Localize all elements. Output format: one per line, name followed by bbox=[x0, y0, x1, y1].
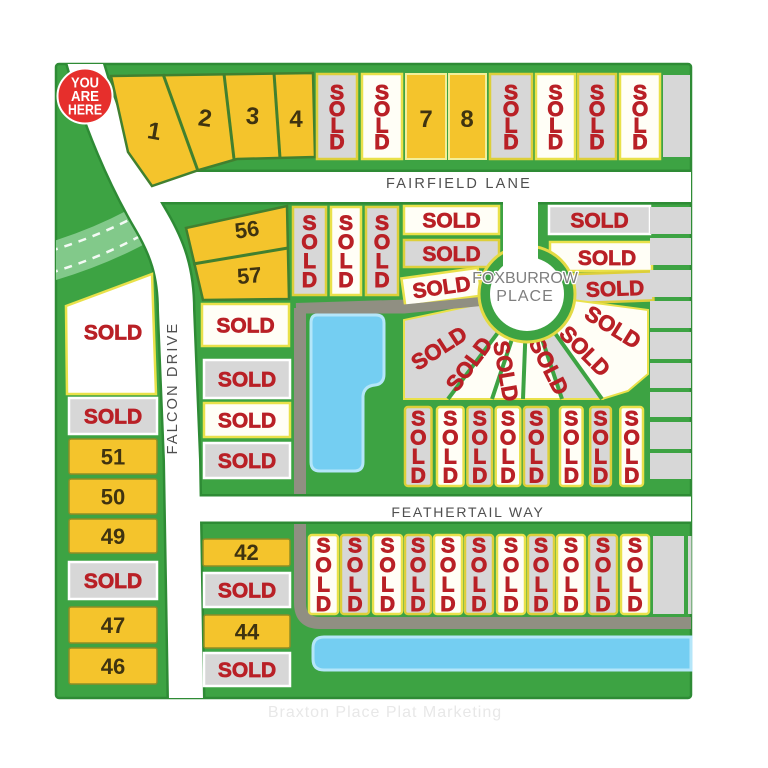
svg-text:8: 8 bbox=[460, 106, 473, 133]
svg-text:D: D bbox=[374, 131, 389, 154]
svg-text:47: 47 bbox=[101, 613, 125, 638]
svg-text:D: D bbox=[302, 269, 317, 292]
svg-text:SOLD: SOLD bbox=[578, 247, 636, 270]
svg-text:PLACE: PLACE bbox=[496, 288, 553, 305]
svg-text:SOLD: SOLD bbox=[218, 368, 276, 391]
svg-text:SOLD: SOLD bbox=[585, 277, 644, 302]
svg-text:44: 44 bbox=[235, 620, 260, 645]
svg-text:SOLD: SOLD bbox=[218, 659, 276, 682]
svg-text:56: 56 bbox=[233, 215, 261, 243]
svg-text:D: D bbox=[503, 593, 518, 616]
svg-text:57: 57 bbox=[236, 262, 263, 289]
svg-text:D: D bbox=[563, 593, 578, 616]
svg-text:D: D bbox=[564, 464, 579, 487]
svg-text:SOLD: SOLD bbox=[218, 450, 276, 473]
svg-text:FEATHERTAIL WAY: FEATHERTAIL WAY bbox=[391, 504, 544, 520]
svg-text:D: D bbox=[329, 131, 344, 154]
svg-text:SOLD: SOLD bbox=[216, 314, 274, 337]
svg-text:D: D bbox=[500, 464, 515, 487]
svg-text:51: 51 bbox=[101, 445, 125, 470]
svg-text:42: 42 bbox=[234, 540, 258, 565]
svg-text:D: D bbox=[503, 131, 518, 154]
svg-text:FALCON DRIVE: FALCON DRIVE bbox=[165, 322, 181, 455]
svg-text:D: D bbox=[440, 593, 455, 616]
svg-text:FAIRFIELD LANE: FAIRFIELD LANE bbox=[386, 176, 532, 192]
svg-text:46: 46 bbox=[101, 654, 125, 679]
svg-text:FOXBURROW: FOXBURROW bbox=[472, 270, 579, 287]
svg-text:SOLD: SOLD bbox=[218, 409, 276, 432]
svg-text:D: D bbox=[472, 464, 487, 487]
svg-text:D: D bbox=[548, 131, 563, 154]
svg-text:D: D bbox=[595, 593, 610, 616]
svg-text:D: D bbox=[374, 269, 389, 292]
svg-text:50: 50 bbox=[101, 485, 125, 510]
svg-text:D: D bbox=[533, 593, 548, 616]
svg-text:D: D bbox=[471, 593, 486, 616]
svg-text:D: D bbox=[443, 464, 458, 487]
svg-text:49: 49 bbox=[101, 524, 125, 549]
svg-text:D: D bbox=[627, 593, 642, 616]
svg-text:3: 3 bbox=[245, 103, 260, 131]
svg-text:D: D bbox=[411, 464, 426, 487]
svg-text:SOLD: SOLD bbox=[84, 321, 142, 344]
svg-text:SOLD: SOLD bbox=[84, 405, 142, 428]
svg-text:HERE: HERE bbox=[68, 102, 102, 119]
svg-text:D: D bbox=[632, 131, 647, 154]
svg-text:SOLD: SOLD bbox=[422, 243, 480, 266]
svg-text:Braxton Place Plat Marketing: Braxton Place Plat Marketing bbox=[268, 704, 502, 721]
svg-text:D: D bbox=[624, 464, 639, 487]
svg-text:D: D bbox=[410, 593, 425, 616]
svg-text:SOLD: SOLD bbox=[422, 209, 480, 232]
svg-text:SOLD: SOLD bbox=[84, 570, 142, 593]
svg-text:SOLD: SOLD bbox=[570, 209, 628, 232]
svg-text:D: D bbox=[593, 464, 608, 487]
svg-text:7: 7 bbox=[419, 106, 432, 133]
svg-text:D: D bbox=[338, 269, 353, 292]
svg-text:4: 4 bbox=[289, 106, 303, 133]
svg-text:D: D bbox=[347, 593, 362, 616]
svg-text:D: D bbox=[316, 593, 331, 616]
svg-text:D: D bbox=[529, 464, 544, 487]
svg-text:D: D bbox=[589, 131, 604, 154]
svg-text:SOLD: SOLD bbox=[218, 579, 276, 602]
svg-text:D: D bbox=[380, 593, 395, 616]
